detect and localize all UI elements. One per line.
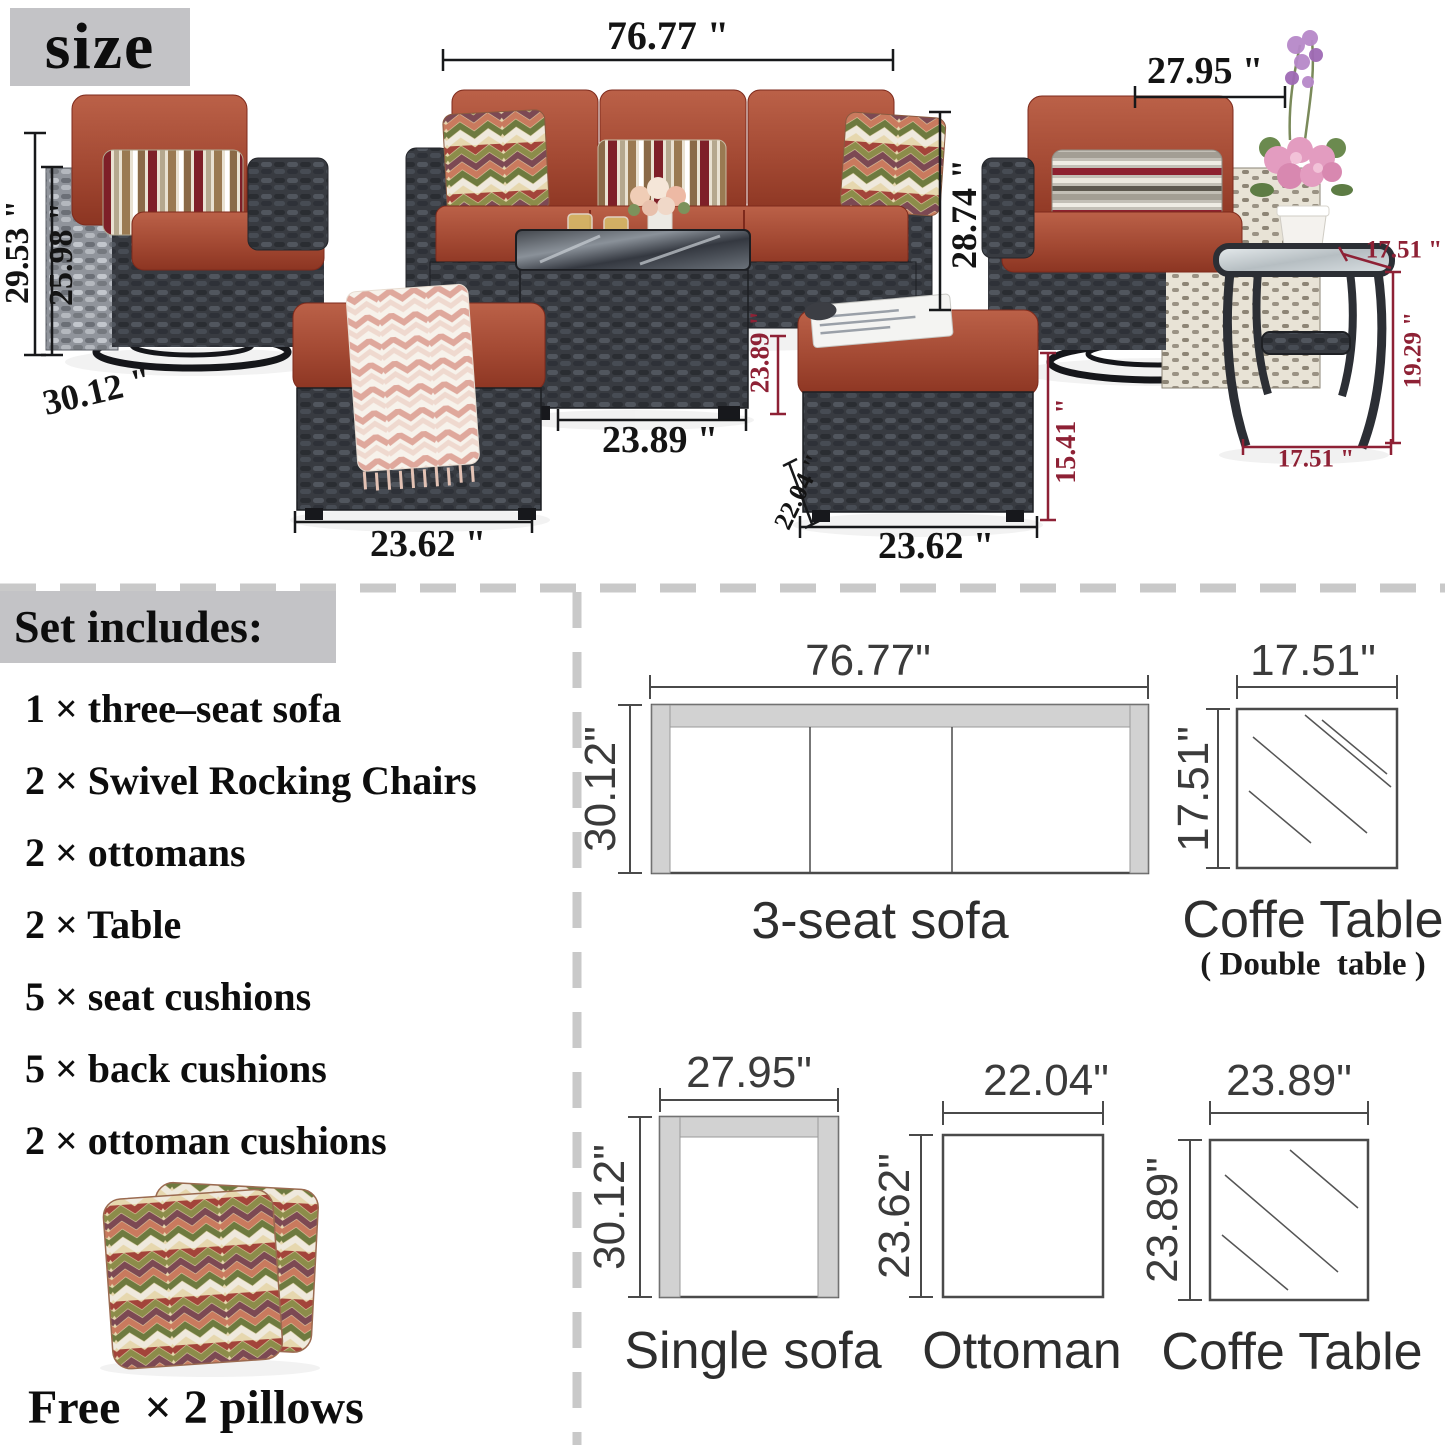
diagram-sofa3-depth: 30.12" (579, 726, 623, 852)
diagram-coffee-double-label: Coffe Table (1182, 894, 1443, 946)
diagram-ottoman-label: Ottoman (922, 1325, 1121, 1377)
diagram-ottoman-depth: 23.62" (873, 1153, 917, 1279)
throw-blanket (346, 284, 482, 492)
right-ottoman (798, 291, 1038, 522)
diagram-coffee-double-sublabel: ( Double table ) (1200, 949, 1426, 982)
list-item-ottoman-cushions: 2 × ottoman cushions (25, 1120, 387, 1162)
diagram-sofa3-width: 76.77" (805, 639, 931, 683)
list-item-ottomans: 2 × ottomans (25, 832, 246, 874)
diagram-coffee-double-depth: 17.51" (1172, 726, 1216, 852)
size-heading-label: size (45, 14, 156, 80)
diagram-coffee-table (1178, 1101, 1368, 1300)
diagram-coffee-double-width: 17.51" (1250, 639, 1376, 683)
dim-chair-total-height: 29.53 " (1, 200, 35, 304)
list-item-chairs: 2 × Swivel Rocking Chairs (25, 760, 477, 802)
free-pillows-image (100, 1182, 320, 1377)
diagram-sofa3-label: 3-seat sofa (751, 895, 1008, 947)
dim-sofa-height: 28.74 " (946, 159, 982, 269)
diagram-coffee-depth: 23.89" (1141, 1157, 1185, 1283)
diagram-ottoman (909, 1101, 1103, 1297)
diagram-single-sofa-label: Single sofa (624, 1325, 881, 1377)
dim-chair-width: 27.95 " (1147, 52, 1263, 90)
dim-chair-frame-height: 25.98 " (45, 202, 79, 306)
list-item-tables: 2 × Table (25, 904, 181, 946)
dim-ottoman-height: 15.41 " (1053, 398, 1081, 484)
diagram-3seat-sofa (618, 675, 1148, 873)
free-pillows-note: Free × 2 pillows (28, 1380, 364, 1435)
diagram-single-sofa-width: 27.95" (686, 1051, 812, 1095)
list-item-back-cushions: 5 × back cushions (25, 1048, 327, 1090)
diagram-single-sofa (628, 1088, 838, 1297)
dim-ottoman-right-width: 23.62 " (878, 527, 994, 565)
dim-sofa-width: 76.77 " (607, 16, 729, 56)
set-includes-heading: Set includes: (0, 591, 336, 663)
size-heading: size (10, 8, 190, 86)
diagram-single-sofa-depth: 30.12" (588, 1144, 632, 1270)
set-includes-heading-label: Set includes: (14, 604, 263, 650)
left-swivel-chair (46, 95, 328, 368)
dim-coffee-width: 23.89 " (602, 421, 718, 459)
diagram-coffee-table-double (1206, 675, 1397, 868)
dim-side-table-top-width: 17.51 " (1366, 238, 1442, 263)
diagram-coffee-label: Coffe Table (1161, 1326, 1422, 1378)
diagram-ottoman-width: 22.04" (983, 1059, 1109, 1103)
list-item-seat-cushions: 5 × seat cushions (25, 976, 311, 1018)
dim-ottoman-left-width: 23.62 " (370, 525, 486, 563)
dim-side-table-width: 17.51 " (1278, 447, 1354, 472)
dim-coffee-height: 23.89 " (747, 311, 774, 394)
diagram-coffee-width: 23.89" (1226, 1059, 1352, 1103)
product-size-infographic: size Set includes: 76.77 " 27.95 " 29.53… (0, 0, 1445, 1445)
dim-side-table-height: 19.29 " (1401, 312, 1426, 388)
left-ottoman (293, 284, 545, 520)
list-item-sofa: 1 × three–seat sofa (25, 688, 341, 730)
